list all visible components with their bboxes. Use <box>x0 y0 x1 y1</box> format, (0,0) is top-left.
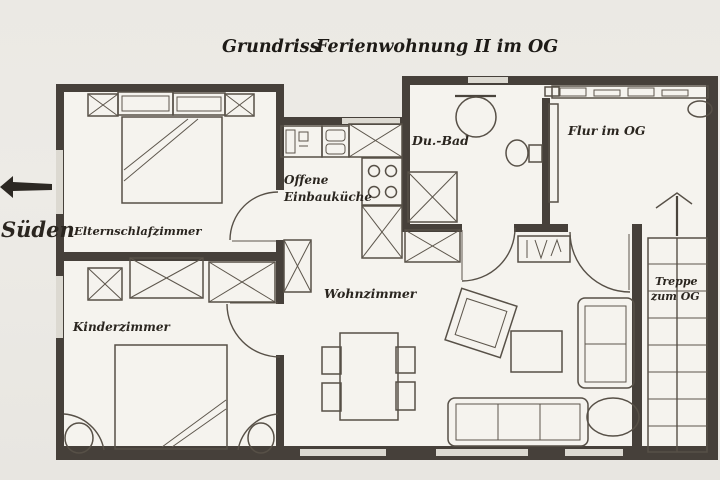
plan-title-part2: Ferienwohnung II im OG <box>315 37 558 57</box>
south-arrow-icon <box>0 176 52 198</box>
room-label-flur: Flur im OG <box>567 123 646 138</box>
floor-plan-page: Grundriss Ferienwohnung II im OG Süden E… <box>0 0 720 480</box>
room-label-kueche-line1: Offene <box>284 173 329 187</box>
wall-top-right <box>402 76 718 85</box>
room-label-treppe-line2: zum OG <box>650 290 700 303</box>
wall-right <box>706 78 718 458</box>
wall-bath-left <box>402 85 410 232</box>
window <box>300 449 386 456</box>
wall-between-bedrooms <box>56 252 284 261</box>
wall-bedroom-right-a <box>276 84 284 190</box>
wall-bedroom-right-c <box>276 355 284 452</box>
room-label-bad: Du.-Bad <box>411 133 469 148</box>
window <box>56 150 63 214</box>
room-label-kueche-line2: Einbauküche <box>283 190 372 204</box>
window <box>56 276 63 338</box>
window <box>342 118 400 124</box>
wall-bath-bottom-b <box>514 224 568 232</box>
window <box>436 449 528 456</box>
wall-top-left <box>56 84 284 92</box>
room-label-wohnzimmer: Wohnzimmer <box>324 286 418 301</box>
wall-left <box>56 84 64 458</box>
room-label-treppe-line1: Treppe <box>655 275 698 288</box>
plan-interior <box>60 84 710 450</box>
compass-label: Süden <box>1 217 75 242</box>
room-label-kinderzimmer: Kinderzimmer <box>72 320 171 334</box>
wall-bedroom-right-b <box>276 240 284 304</box>
window <box>565 449 623 456</box>
floor-plan-drawing: Grundriss Ferienwohnung II im OG Süden E… <box>0 0 720 480</box>
plan-title-part1: Grundriss <box>222 37 320 57</box>
wall-bath-bottom-a <box>402 224 462 232</box>
room-label-elternschlafzimmer: Elternschlafzimmer <box>73 224 202 238</box>
window <box>468 77 508 83</box>
